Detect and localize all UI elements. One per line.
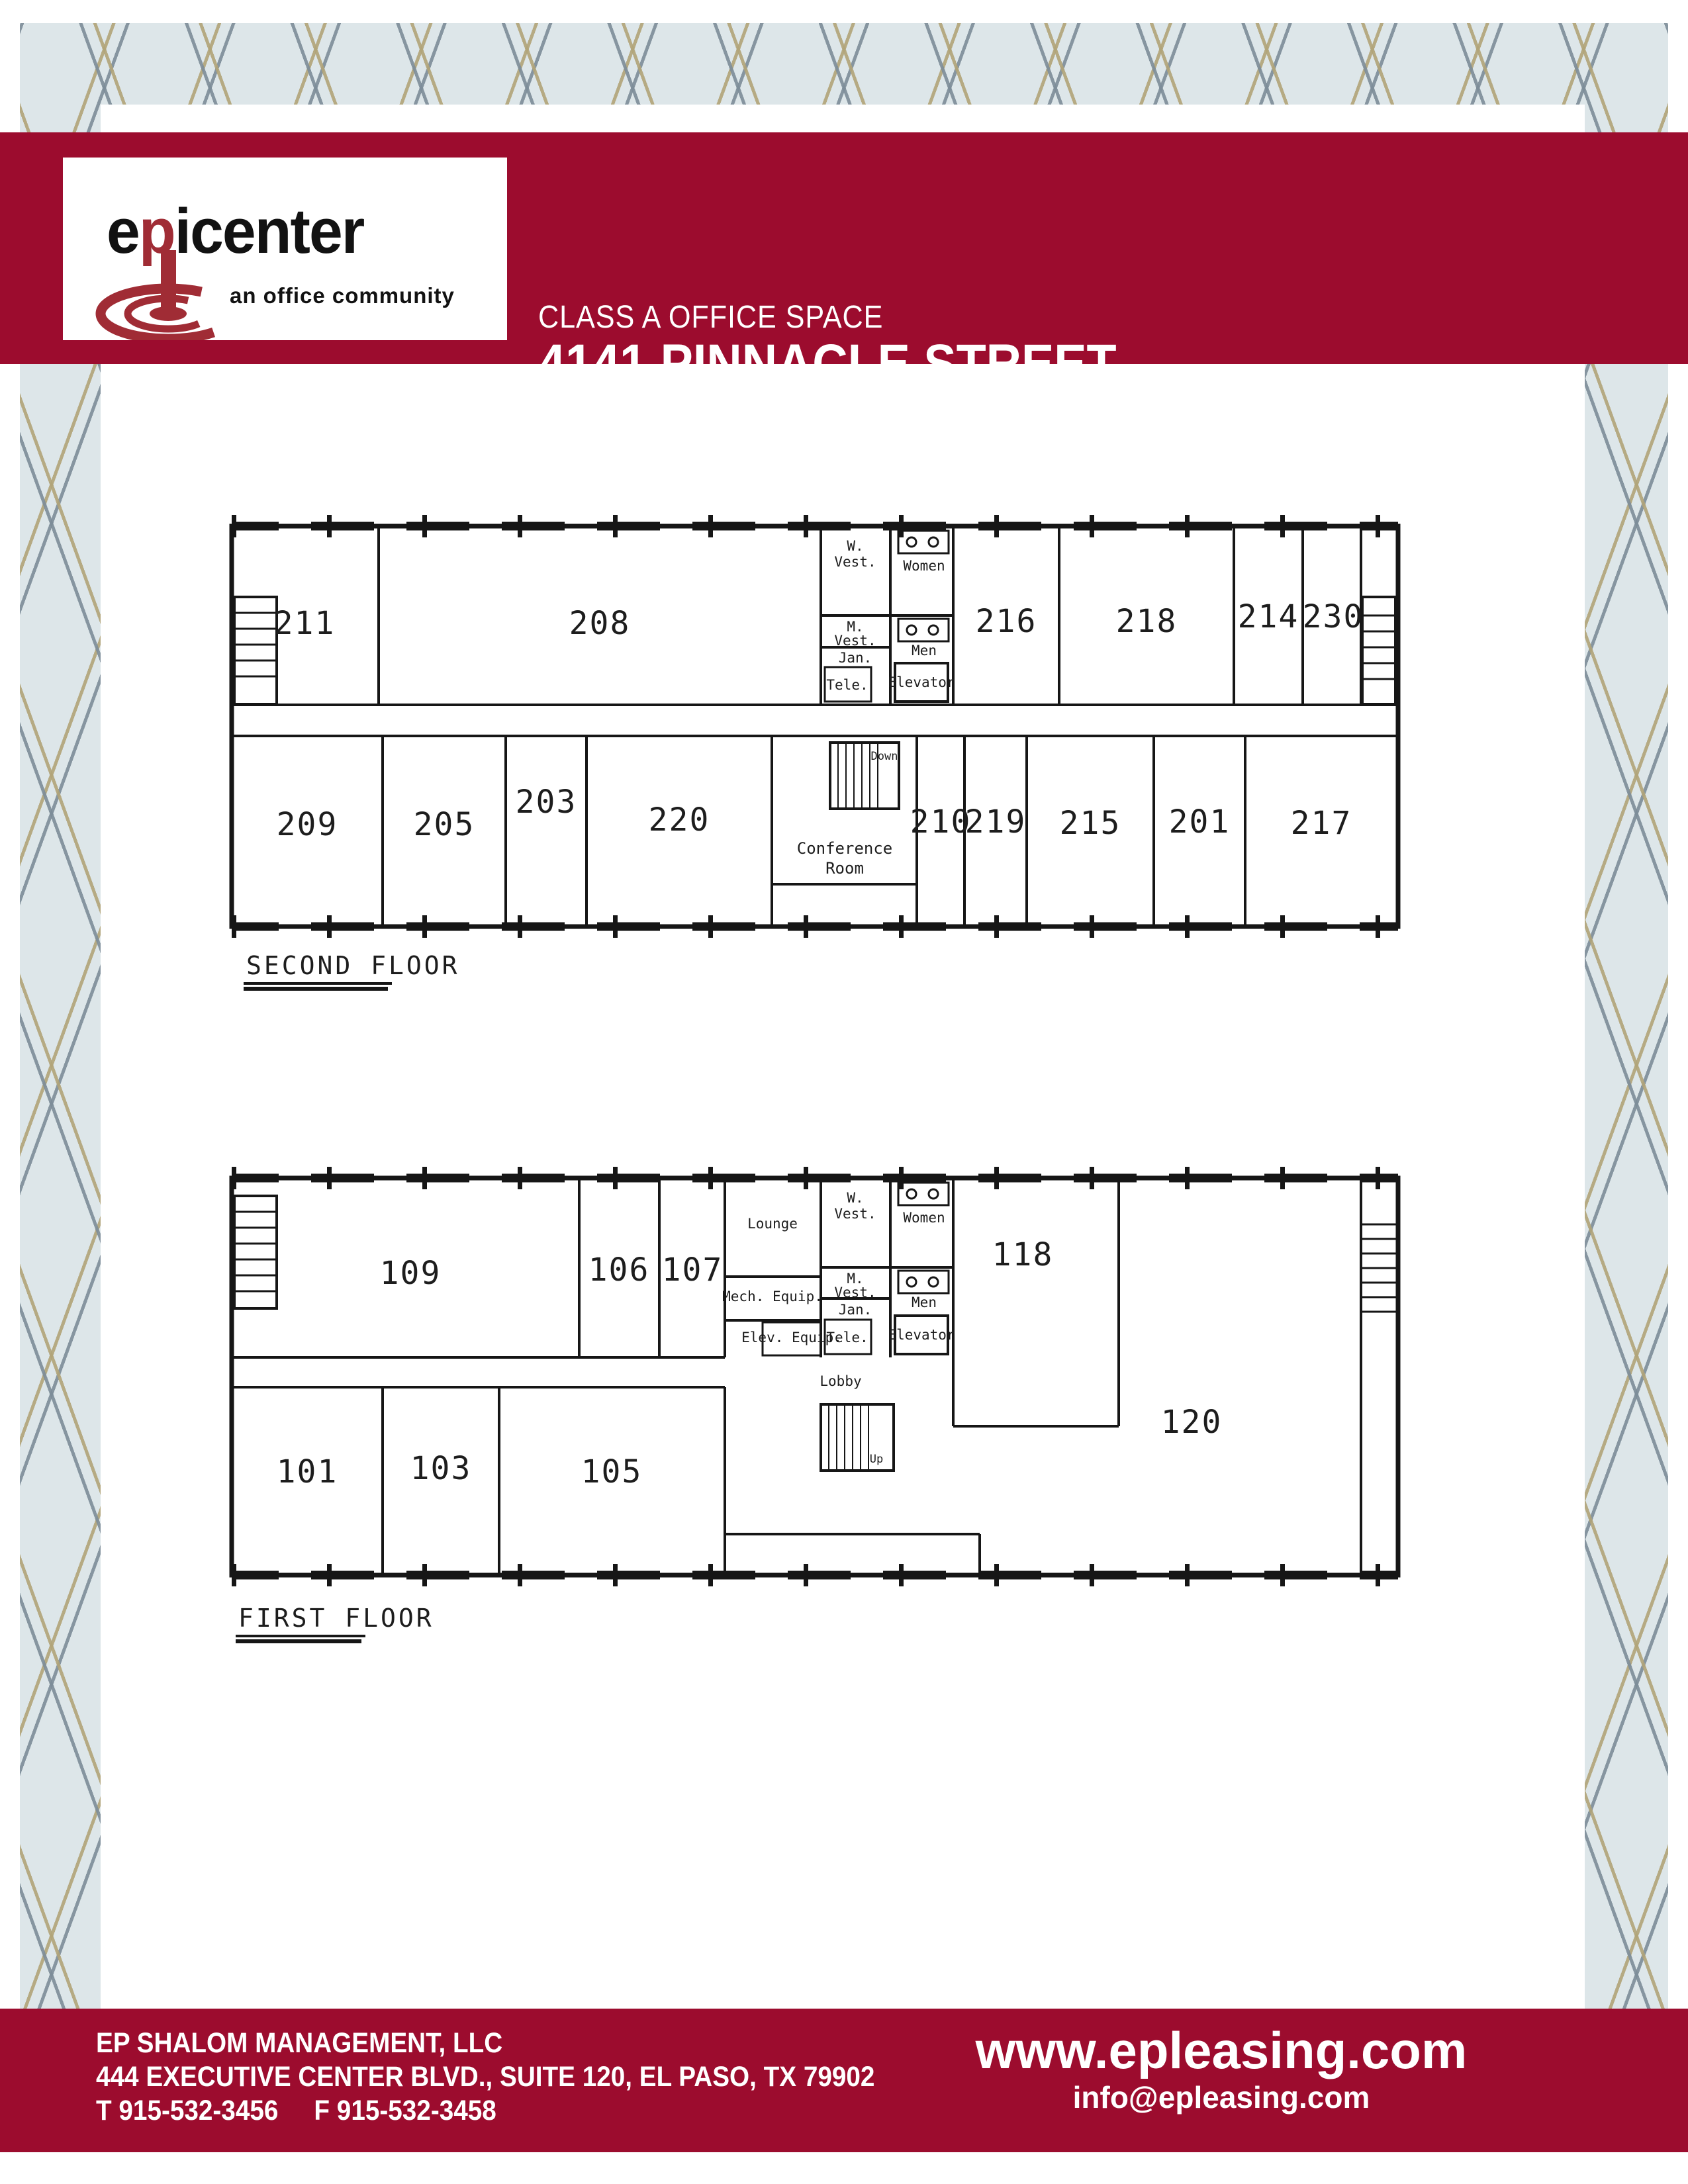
header-area-text: EL PASO-WEST/CENTRAL [538,409,962,452]
footer-company: EP SHALOM MANAGEMENT, LLC [96,2026,874,2060]
logo-rest: icenter [175,196,364,267]
footer-phone: T 915-532-3456 [96,2095,278,2126]
logo-e: e [107,196,139,267]
footer-phones: T 915-532-3456F 915-532-3458 [96,2094,874,2128]
footer-website-link[interactable]: www.epleasing.com [887,2021,1556,2079]
footer-web-block: www.epleasing.com info@epleasing.com [887,2021,1556,2115]
logo-p: p [139,196,175,267]
header-address-line: 4141 PINNACLE STREET [538,333,1181,395]
epicenter-logo: epicenter an office community [63,158,507,340]
logo-tagline: an office community [230,283,455,308]
header-class-line: CLASS A OFFICE SPACE [538,299,921,336]
header-class-text: CLASS A OFFICE SPACE [538,299,883,336]
footer-contact-block: EP SHALOM MANAGEMENT, LLC 444 EXECUTIVE … [96,2026,874,2128]
footer-address: 444 EXECUTIVE CENTER BLVD., SUITE 120, E… [96,2060,874,2094]
footer-fax: F 915-532-3458 [314,2095,496,2126]
footer-email-link[interactable]: info@epleasing.com [887,2079,1556,2115]
header-area-line: EL PASO-WEST/CENTRAL [538,409,1009,452]
header-address-text: 4141 PINNACLE STREET [538,333,1117,395]
epicenter-wordmark: epicenter [107,200,363,263]
